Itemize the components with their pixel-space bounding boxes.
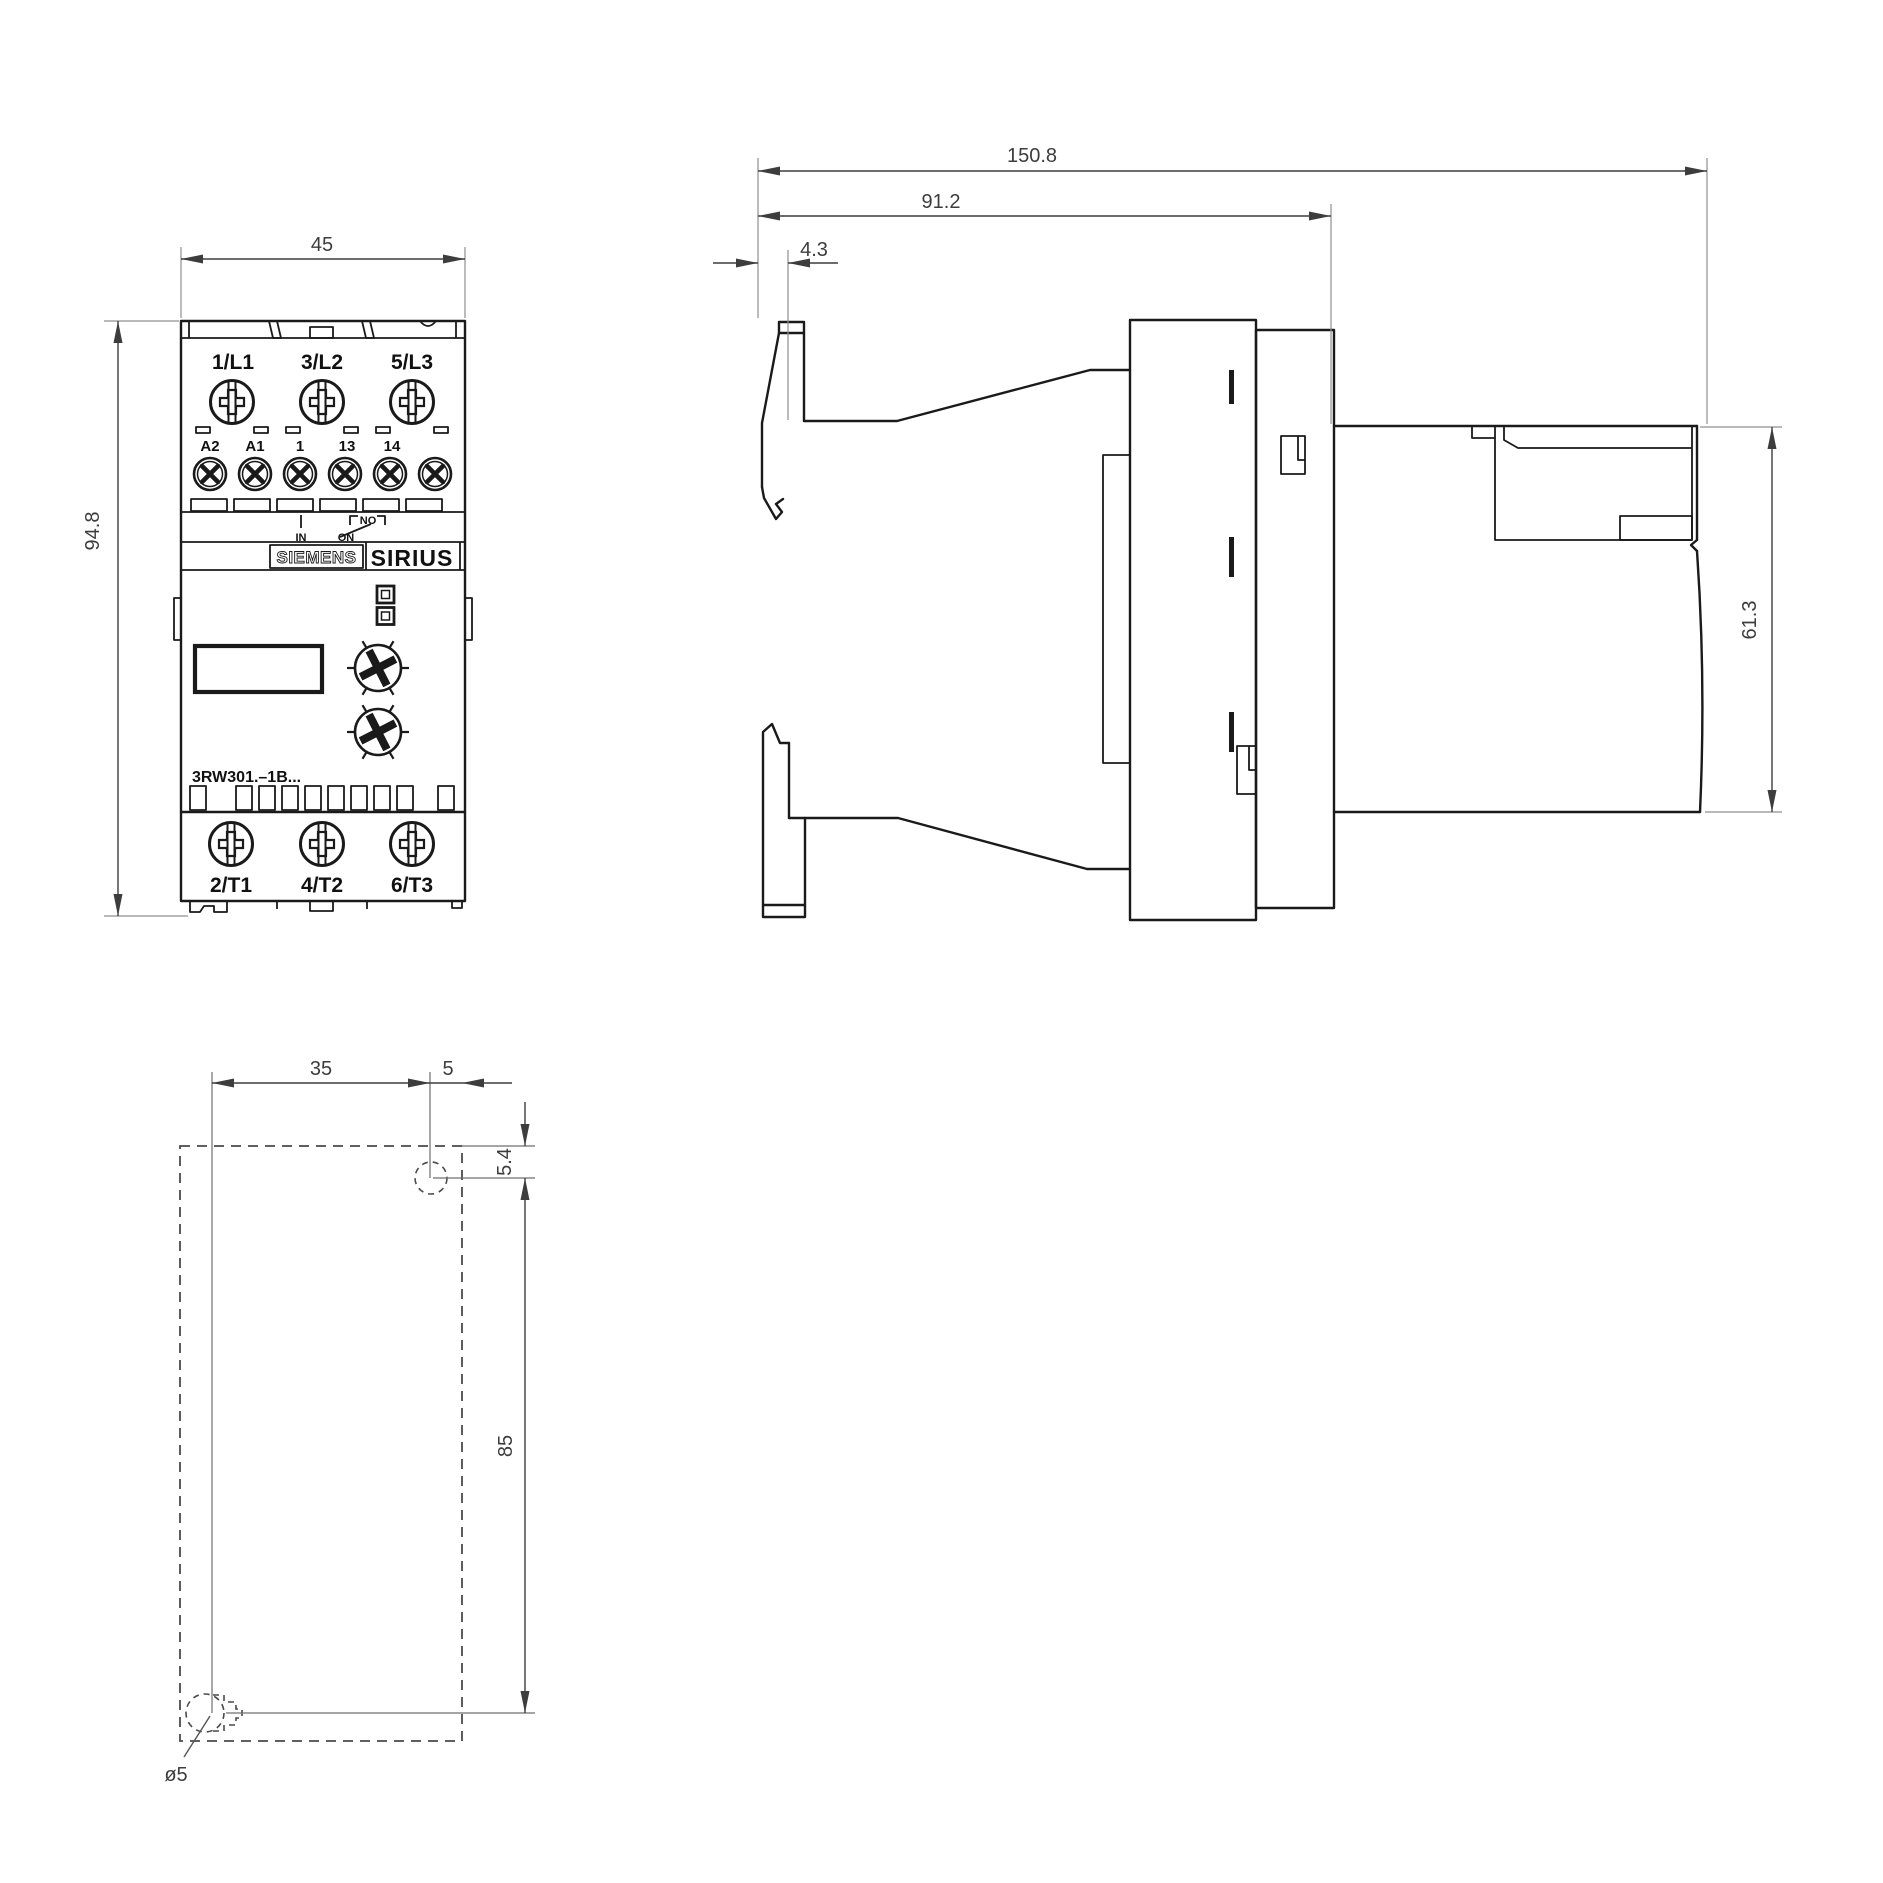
screw-terminal-13 — [329, 458, 361, 490]
hole-diameter-callout: ø5 — [164, 1716, 210, 1786]
series-label: SIRIUS — [371, 545, 454, 571]
terminal-label-1L1: 1/L1 — [212, 351, 254, 374]
front-body-outline — [181, 321, 465, 901]
terminal-label-1: 1 — [296, 438, 304, 455]
front-bottom-tabs — [190, 901, 462, 912]
screw-terminal-2T1 — [210, 823, 253, 866]
dim-rear-height-value: 61.3 — [1739, 601, 1761, 640]
rear-terminal-cavity — [1472, 426, 1692, 540]
hole-center-lines — [212, 1072, 535, 1713]
dimension-61-3: 61.3 — [1700, 427, 1782, 812]
dim-edge-offset-v-value: 5.4 — [494, 1148, 516, 1176]
mounting-hook-lower — [1237, 746, 1256, 794]
terminal-label-3L2: 3/L2 — [301, 351, 343, 374]
dim-height-value: 94.8 — [82, 512, 104, 551]
screw-terminal-A1 — [239, 458, 271, 490]
screw-terminal-4T2 — [301, 823, 344, 866]
dim-clip-offset-value: 4.3 — [800, 239, 828, 261]
side-rear-housing — [1334, 426, 1702, 812]
model-number: 3RW301.–1B... — [192, 769, 301, 786]
screw-terminal-14 — [374, 458, 406, 490]
dim-hole-spacing-v-value: 85 — [495, 1435, 517, 1457]
screw-terminal-1L1 — [211, 381, 254, 424]
dim-depth-total-value: 150.8 — [1007, 145, 1057, 167]
side-inner-seam — [1103, 455, 1130, 763]
contact-markings: IN ON NO — [296, 515, 386, 544]
side-view: 150.8 91.2 4.3 61.3 — [713, 145, 1782, 920]
terminal-label-6T3: 6/T3 — [391, 874, 433, 897]
block-slit-bottom — [1229, 712, 1234, 752]
terminal-label-A1: A1 — [245, 438, 264, 455]
side-main-block — [1130, 320, 1256, 920]
terminal-label-5L3: 5/L3 — [391, 351, 433, 374]
dimension-85: 85 — [495, 1178, 530, 1713]
terminal-label-4T2: 4/T2 — [301, 874, 343, 897]
mounting-hook-upper — [1281, 436, 1305, 474]
dimension-4-3: 4.3 — [713, 239, 838, 420]
dimension-91-2: 91.2 — [758, 191, 1331, 424]
dim-width-value: 45 — [311, 234, 333, 256]
dim-edge-offset-h-value: 5 — [442, 1058, 453, 1080]
brand-logo-text: SIEMENS — [276, 548, 356, 567]
din-clip-lower — [763, 724, 805, 917]
rotary-knob-lower — [347, 705, 409, 759]
block-slit-middle — [1229, 537, 1234, 577]
dimension-5-4: 5.4 — [494, 1102, 530, 1176]
terminal-label-13: 13 — [339, 438, 356, 455]
block-slit-top — [1229, 370, 1234, 404]
dimension-45: 45 — [181, 234, 465, 318]
technical-drawing: 1/L1 3/L2 5/L3 A2 A1 1 13 14 — [0, 0, 1883, 1883]
side-front-section — [1256, 330, 1334, 908]
drilling-plan: 35 5 5.4 85 ø5 — [164, 1058, 535, 1786]
hole-diameter-value: ø5 — [164, 1764, 187, 1786]
wire-openings — [191, 499, 442, 511]
front-view: 1/L1 3/L2 5/L3 A2 A1 1 13 14 — [82, 234, 472, 916]
display-window — [195, 646, 322, 692]
din-clip-upper — [762, 322, 804, 519]
dim-depth-body-value: 91.2 — [922, 191, 961, 213]
dim-hole-spacing-h-value: 35 — [310, 1058, 332, 1080]
screw-terminal-5L3 — [391, 381, 434, 424]
screw-terminal-A2 — [194, 458, 226, 490]
rotary-knob-upper — [347, 641, 409, 695]
screw-terminal-6T3 — [391, 823, 434, 866]
terminal-label-2T1: 2/T1 — [210, 874, 252, 897]
screw-terminal-aux — [419, 458, 451, 490]
front-top-edge-details — [189, 321, 456, 338]
device-footprint-outline — [180, 1146, 462, 1741]
side-mid-body — [789, 370, 1130, 869]
screw-terminal-3L2 — [301, 381, 344, 424]
terminal-label-A2: A2 — [200, 438, 219, 455]
dimension-drawing-page: 1/L1 3/L2 5/L3 A2 A1 1 13 14 — [0, 0, 1883, 1883]
terminal-label-14: 14 — [384, 438, 401, 455]
screw-terminal-1 — [284, 458, 316, 490]
switch-lever-line — [340, 524, 371, 537]
dimension-35: 35 — [212, 1058, 462, 1088]
vent-slots — [190, 786, 454, 810]
clamp-slots-top — [196, 427, 448, 433]
status-leds — [377, 586, 394, 625]
dimension-94-8: 94.8 — [82, 321, 188, 916]
